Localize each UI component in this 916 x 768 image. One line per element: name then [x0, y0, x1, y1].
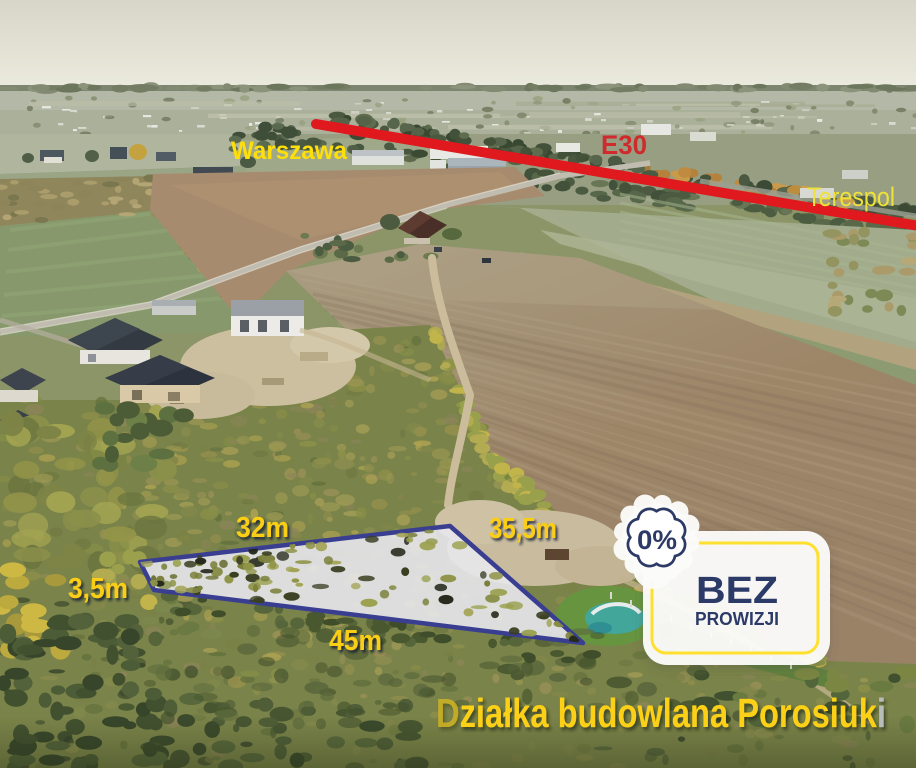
svg-text:32m: 32m [236, 512, 289, 544]
svg-text:BEZ: BEZ [696, 570, 778, 612]
svg-text:E30: E30 [601, 130, 647, 160]
svg-text:Terespol: Terespol [807, 182, 895, 212]
svg-text:0%: 0% [637, 525, 677, 555]
svg-text:35,5m: 35,5m [489, 513, 557, 545]
svg-text:3,5m: 3,5m [68, 573, 128, 605]
svg-text:PROWIZJI: PROWIZJI [695, 609, 779, 629]
svg-text:Działka budowlana Porosiuki: Działka budowlana Porosiuki [436, 690, 886, 736]
svg-text:Warszawa: Warszawa [231, 137, 348, 165]
svg-text:45m: 45m [329, 625, 382, 657]
